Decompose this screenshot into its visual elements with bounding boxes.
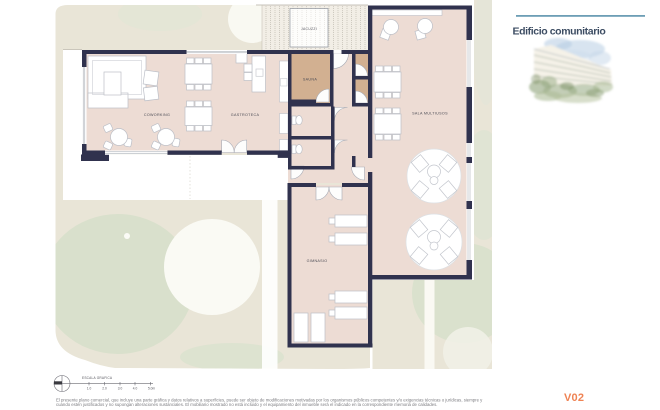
- svg-text:V02: V02: [564, 392, 584, 404]
- svg-text:cuando estén justificados y no: cuando estén justificados y no supongan …: [56, 402, 437, 407]
- svg-text:5.0m: 5.0m: [148, 387, 155, 391]
- svg-text:3.0: 3.0: [118, 387, 123, 391]
- svg-text:ESCALA GRAFICA: ESCALA GRAFICA: [82, 376, 113, 380]
- svg-text:GASTROTECA: GASTROTECA: [231, 113, 260, 117]
- svg-text:COWORKING: COWORKING: [144, 113, 170, 117]
- svg-text:1.0: 1.0: [87, 387, 92, 391]
- svg-text:JACUZZI: JACUZZI: [301, 27, 317, 31]
- svg-text:Edificio comunitario: Edificio comunitario: [513, 26, 606, 38]
- svg-text:2.0: 2.0: [102, 387, 107, 391]
- svg-text:GIMNASIO: GIMNASIO: [307, 259, 328, 263]
- svg-text:SAUNA: SAUNA: [303, 78, 317, 82]
- svg-text:4.0: 4.0: [133, 387, 138, 391]
- svg-text:SALA MULTIUSOS: SALA MULTIUSOS: [412, 112, 448, 116]
